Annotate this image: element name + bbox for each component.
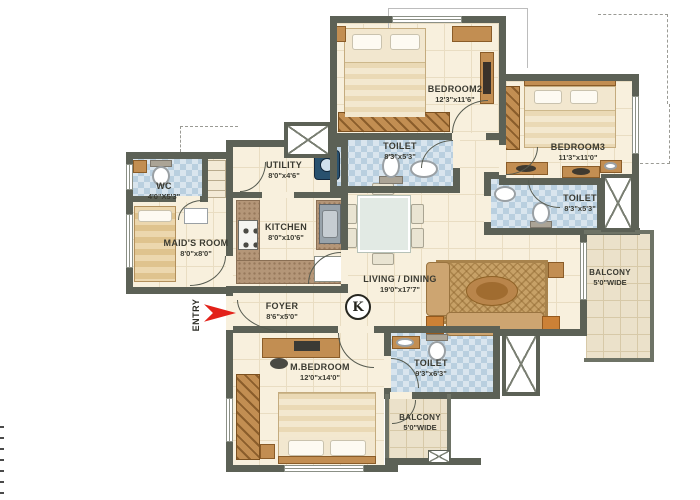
bench-tray xyxy=(604,162,617,170)
compass-k-indicator: K xyxy=(345,294,371,320)
washbasin xyxy=(396,338,414,347)
room-name: BALCONY xyxy=(580,268,640,278)
room-dims: 5'0"WIDE xyxy=(388,423,452,432)
door-opening xyxy=(484,196,491,222)
room-label-bedroom3: BEDROOM3 11'3"x11'0" xyxy=(526,142,630,162)
shaft-duct xyxy=(502,332,540,396)
headboard xyxy=(278,456,376,464)
wardrobe xyxy=(236,374,260,460)
room-name: KITCHEN xyxy=(244,222,328,233)
room-label-toilet-master: TOILET 9'3"x6'3" xyxy=(392,358,470,378)
wall xyxy=(126,152,233,159)
nightstand xyxy=(260,444,275,459)
laptop xyxy=(294,341,320,351)
pillow xyxy=(138,210,172,222)
room-dims: 9'3"x6'3" xyxy=(392,369,470,378)
pillow xyxy=(390,34,420,50)
pillow xyxy=(352,34,382,50)
dining-table xyxy=(358,196,410,252)
room-label-foyer: FOYER 8'6"x5'0" xyxy=(244,301,320,321)
room-dims: 4'0"X5'3" xyxy=(132,192,196,201)
dining-chair xyxy=(372,253,394,265)
dining-chair xyxy=(411,228,424,248)
room-dims: 8'0"x8'0" xyxy=(144,249,248,258)
room-label-utility: UTILITY 8'0"x4'6" xyxy=(242,160,326,180)
door-opening xyxy=(338,326,374,333)
room-name: WC xyxy=(132,181,196,192)
room-dims: 19'0"x17'7" xyxy=(338,285,462,294)
window xyxy=(392,16,462,23)
floor-plan: BEDROOM2 12'3"x11'6" TOILET 8'3"x5'3" BE… xyxy=(0,0,700,500)
door-opening xyxy=(453,140,460,168)
door-opening xyxy=(452,133,486,140)
room-label-maids-room: MAID'S ROOM 8'0"x8'0" xyxy=(144,238,248,258)
balcony-rail xyxy=(650,230,654,362)
door-opening xyxy=(262,192,294,198)
toilet-tank xyxy=(426,334,448,341)
room-dims: 8'3"x5'3" xyxy=(364,152,436,161)
dresser xyxy=(452,26,492,42)
room-dims: 12'0"x14'0" xyxy=(258,373,382,382)
washbasin xyxy=(494,186,516,202)
room-label-balcony-right: BALCONY 5'0"WIDE xyxy=(580,268,640,287)
room-name: BEDROOM2 xyxy=(400,84,510,95)
pillow xyxy=(570,90,598,104)
wall xyxy=(493,326,500,399)
wall xyxy=(202,152,208,202)
room-label-living-dining: LIVING / DINING 19'0"x17'7" xyxy=(338,274,462,294)
wall xyxy=(126,287,233,294)
room-name: TOILET xyxy=(364,141,436,152)
window xyxy=(284,465,364,472)
planter-box xyxy=(428,450,450,463)
room-name: TOILET xyxy=(392,358,470,369)
room-label-toilet-right: TOILET 8'3"x5'3" xyxy=(544,193,616,213)
wc-counter xyxy=(133,160,147,173)
balcony-right-floor xyxy=(586,232,650,358)
room-label-balcony-bottom: BALCONY 5'0"WIDE xyxy=(388,413,452,432)
room-dims: 8'0"x10'6" xyxy=(244,233,328,242)
side-table xyxy=(548,262,564,278)
room-name: UTILITY xyxy=(242,160,326,171)
door-opening xyxy=(499,145,506,175)
door-opening xyxy=(390,392,412,399)
coffee-table-top xyxy=(476,282,508,300)
room-name: LIVING / DINING xyxy=(338,274,462,285)
linen-shelf xyxy=(206,160,226,198)
room-dims: 12'3"x11'6" xyxy=(400,95,510,104)
room-name: BEDROOM3 xyxy=(526,142,630,153)
window xyxy=(126,214,133,268)
entry-label: ENTRY xyxy=(191,295,201,335)
door-opening xyxy=(226,256,233,286)
dining-chair xyxy=(411,204,424,224)
door-opening xyxy=(384,356,391,388)
edge-tick-marks xyxy=(0,426,4,498)
wall xyxy=(226,286,348,293)
room-name: FOYER xyxy=(244,301,320,312)
shaft-duct xyxy=(284,122,332,158)
room-dims: 5'0"WIDE xyxy=(580,278,640,287)
room-label-wc: WC 4'0"X5'3" xyxy=(132,181,196,201)
pillow xyxy=(330,440,366,456)
room-name: MAID'S ROOM xyxy=(144,238,248,249)
vanity-tray xyxy=(572,168,590,175)
balcony-rail xyxy=(584,358,654,362)
room-dims: 11'3"x11'0" xyxy=(526,153,630,162)
blanket xyxy=(279,393,375,437)
room-dims: 8'3"x5'3" xyxy=(544,204,616,213)
pillow xyxy=(288,440,324,456)
room-dims: 8'6"x5'0" xyxy=(244,312,320,321)
dashed-guide-right xyxy=(640,104,670,164)
window xyxy=(226,398,233,442)
wall xyxy=(499,74,639,81)
room-name: M.BEDROOM xyxy=(258,362,382,373)
room-dims: 8'0"x4'6" xyxy=(242,171,326,180)
wall xyxy=(330,186,460,193)
room-name: BALCONY xyxy=(388,413,452,423)
window xyxy=(632,96,639,154)
room-name: TOILET xyxy=(544,193,616,204)
room-label-master-bedroom: M.BEDROOM 12'0"x14'0" xyxy=(258,362,382,382)
pillow xyxy=(534,90,562,104)
room-label-kitchen: KITCHEN 8'0"x10'6" xyxy=(244,222,328,242)
room-label-bedroom2: BEDROOM2 12'3"x11'6" xyxy=(400,84,510,104)
room-label-toilet-top: TOILET 8'3"x5'3" xyxy=(364,141,436,161)
